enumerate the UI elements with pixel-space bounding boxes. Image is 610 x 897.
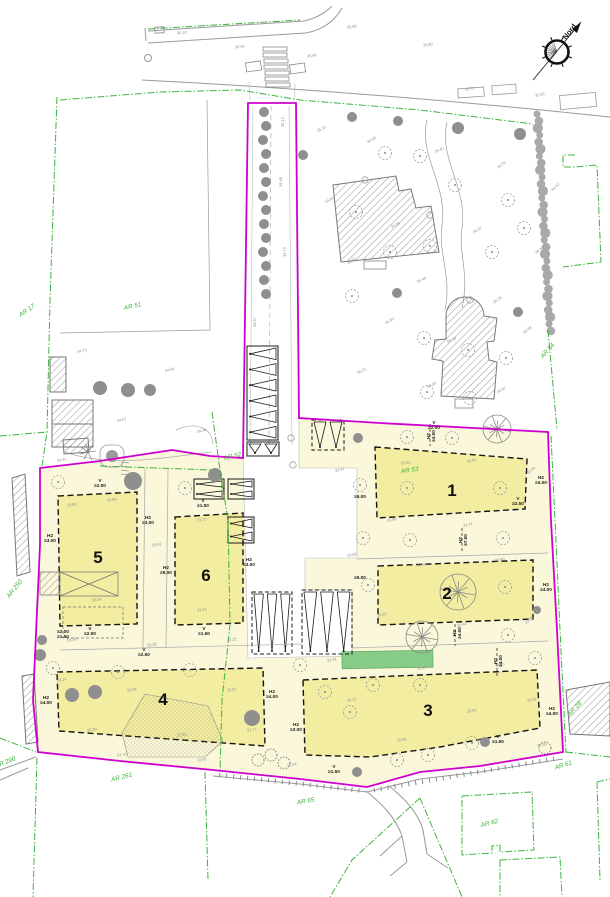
- spot-elevation: 34.76: [496, 160, 507, 170]
- spot-elevation: 34.70: [282, 246, 287, 257]
- spot-elevation: 34.57: [116, 416, 127, 423]
- spot-elevation: 34.41: [57, 456, 67, 463]
- hedge-icon: [545, 312, 555, 322]
- hedge-icon: [535, 144, 545, 154]
- spot-elevation: 35.10: [280, 116, 285, 127]
- tree-icon: [353, 433, 363, 443]
- spot-elevation: 34.85: [278, 177, 283, 187]
- spot-elevation: 34.30: [384, 316, 396, 326]
- spot-elevation: 34.21: [356, 366, 367, 375]
- tree-icon: [258, 247, 268, 257]
- tree-icon: [258, 135, 268, 145]
- tree-icon: [244, 710, 260, 726]
- spot-elevation: 33.97: [496, 385, 507, 394]
- spot-elevation: 34.57: [252, 317, 257, 327]
- spot-elevation: 36.10: [177, 29, 188, 35]
- tree-icon: [452, 122, 464, 134]
- crown-tree-icon: [449, 179, 462, 192]
- tree-icon: [261, 149, 271, 159]
- tree-icon: [144, 384, 156, 396]
- neighbor-garage-1: [50, 357, 66, 392]
- tree-icon: [513, 307, 523, 317]
- hedge-icon: [533, 123, 543, 133]
- spot-elevation: 35.58: [534, 91, 545, 98]
- height-limit-label: ≥2.00≥1.50: [57, 629, 69, 639]
- parcel-label: AR 250: [5, 578, 25, 600]
- crosswalk: [246, 47, 306, 87]
- crown-tree-icon: [346, 290, 359, 303]
- hedge-icon: [538, 207, 548, 217]
- spot-elevation: 35.89: [347, 23, 357, 29]
- spot-elevation: 34.49: [196, 427, 207, 434]
- lot-number: 4: [158, 690, 168, 709]
- hedge-icon: [536, 132, 543, 139]
- lot-number: 6: [201, 566, 210, 585]
- parcel-label: AR 51: [122, 301, 142, 312]
- neighbor-fence: [60, 100, 210, 333]
- hedge-icon: [542, 291, 552, 301]
- hedge-icon: [539, 174, 546, 181]
- spot-elevation: 36.04: [235, 43, 246, 49]
- spot-elevation: 34.66: [164, 366, 175, 373]
- top-footpath: [148, 6, 342, 43]
- lot-number: 1: [447, 481, 456, 500]
- parcel-label: AR 261: [109, 771, 133, 783]
- hedge-icon: [538, 195, 545, 202]
- tree-icon: [258, 191, 268, 201]
- hedge-icon: [546, 321, 553, 328]
- lot-number: 5: [93, 548, 102, 567]
- tree-icon: [347, 112, 357, 122]
- lot-number: 3: [423, 701, 432, 720]
- crown-tree-icon: [500, 352, 513, 365]
- tree-icon: [533, 606, 541, 614]
- tree-icon: [65, 688, 79, 702]
- hedge-icon: [535, 165, 545, 175]
- lot-number: 2: [442, 584, 451, 603]
- tree-icon: [393, 116, 403, 126]
- spot-elevation: 34.62: [550, 182, 561, 192]
- spot-elevation: 34.08: [522, 325, 533, 335]
- hedge-icon: [541, 216, 548, 223]
- hedge-icon: [534, 111, 541, 118]
- spot-elevation: 34.81: [324, 195, 335, 204]
- crown-tree-icon: [414, 150, 427, 163]
- tree-icon: [261, 261, 271, 271]
- tree-icon: [121, 383, 135, 397]
- tree-icon: [514, 128, 526, 140]
- tree-icon: [259, 107, 269, 117]
- tree-icon: [88, 685, 102, 699]
- hedge-icon: [543, 258, 550, 265]
- hedge-icon: [540, 228, 550, 238]
- parcel-label: AR 290: [0, 755, 17, 770]
- spot-elevation: 34.57: [472, 225, 483, 234]
- parcel-label: AR 62: [479, 818, 499, 830]
- height-limit-label: ≥5.00: [354, 494, 366, 499]
- parcel-label: AR 65: [295, 796, 315, 806]
- crown-tree-icon: [379, 147, 392, 160]
- lot-2-area: [378, 560, 533, 625]
- north-arrow: Nord: [533, 22, 581, 80]
- spot-elevation: 35.71: [465, 85, 475, 92]
- boundary-wall-west: [12, 474, 30, 576]
- crown-tree-icon: [418, 332, 431, 345]
- tree-icon: [37, 635, 47, 645]
- crown-tree-icon: [518, 222, 531, 235]
- hedge-icon: [538, 186, 548, 196]
- height-limit-label: ≥5.00: [354, 575, 366, 580]
- tree-icon: [259, 275, 269, 285]
- bottom-exit-road: [366, 786, 448, 876]
- spot-elevation: 34.73: [77, 347, 87, 354]
- tree-icon: [392, 288, 402, 298]
- spot-elevation: 35.80: [423, 41, 434, 47]
- road-furniture: [458, 84, 597, 109]
- spot-elevation: 34.98: [366, 135, 377, 144]
- hedge-icon: [536, 153, 543, 160]
- crown-tree-icon: [486, 246, 499, 259]
- height-limit-label: V≥2.00: [428, 420, 440, 430]
- parcel-label: AR 61: [553, 759, 573, 772]
- hedge-icon: [543, 279, 550, 286]
- tree-icon: [259, 219, 269, 229]
- tree-icon: [261, 289, 271, 299]
- site-plan-svg: 36.1036.0435.9635.8935.8035.7135.5835.12…: [0, 0, 610, 897]
- parcel-label: AR 54: [539, 342, 557, 361]
- spot-elevation: 34.87: [434, 145, 445, 153]
- hedge-icon: [543, 270, 553, 280]
- spot-elevation: 35.12: [316, 124, 327, 133]
- boundary-wall-north: [63, 438, 89, 454]
- parcel-label: AR 17: [17, 303, 37, 320]
- building-main-house: [333, 176, 439, 262]
- tree-icon: [124, 472, 142, 490]
- tree-icon: [259, 163, 269, 173]
- hedge-row: [533, 111, 556, 336]
- spot-elevation: 34.40: [416, 275, 428, 284]
- crown-tree-icon: [502, 194, 515, 207]
- tree-icon: [261, 177, 271, 187]
- tree-icon: [93, 381, 107, 395]
- tree-icon: [298, 150, 308, 160]
- hedge-icon: [541, 237, 548, 244]
- main-road-edge: [142, 80, 610, 117]
- site-plan-sheet: 36.1036.0435.9635.8935.8035.7135.5835.12…: [0, 0, 610, 897]
- tree-icon: [261, 205, 271, 215]
- spot-elevation: 34.05: [426, 380, 437, 389]
- tree-icon: [261, 233, 271, 243]
- building-rear-house: [432, 297, 497, 399]
- neighbor-garage-2: [52, 400, 93, 424]
- tree-icon: [261, 121, 271, 131]
- hedge-icon: [546, 300, 553, 307]
- spot-elevation: 34.28: [492, 295, 503, 305]
- spot-elevation: 35.96: [307, 52, 317, 58]
- tree-icon: [352, 767, 362, 777]
